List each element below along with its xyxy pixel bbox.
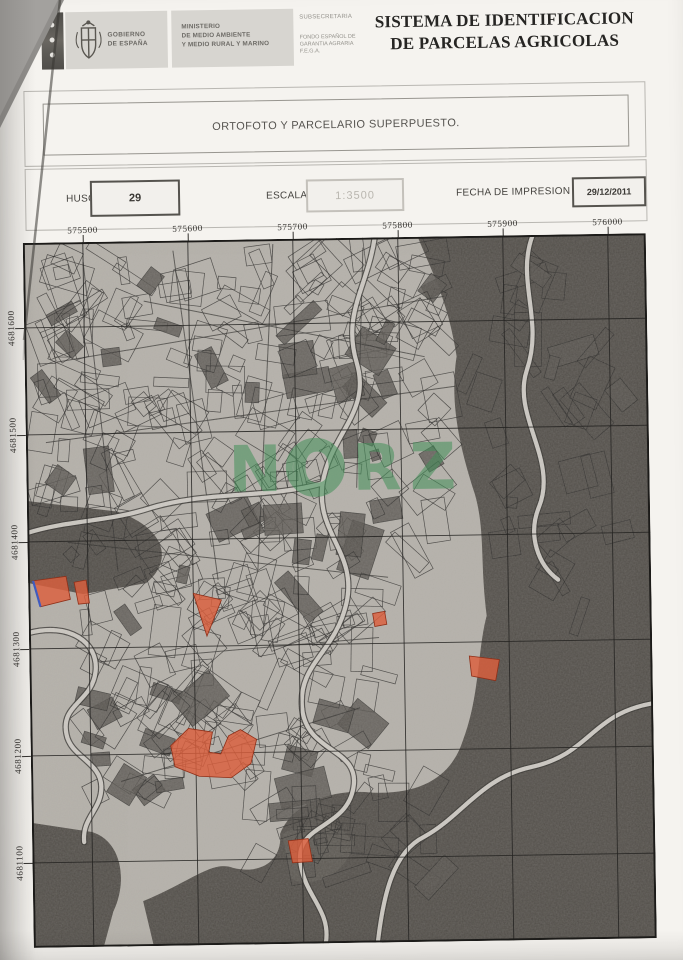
fega-label: FONDO ESPAÑOL DE GARANTIA AGRARIA F.E.G.… <box>300 34 370 57</box>
y-tick-mark <box>17 435 26 436</box>
x-tick-label: 575900 <box>487 218 518 229</box>
watermark-text: NORZ <box>228 430 465 508</box>
flag-dot-icon <box>50 37 55 42</box>
watermark: NORZ <box>228 430 465 508</box>
ministry-label: MINISTERIO DE MEDIO AMBIENTE Y MEDIO RUR… <box>181 21 287 50</box>
x-tick-label: 576000 <box>592 216 623 227</box>
subtitle-outer-box: ORTOFOTO Y PARCELARIO SUPERPUESTO. <box>23 81 646 167</box>
escala-label: ESCALA <box>266 190 307 202</box>
subsecretaria-label: SUBSECRETARIA <box>299 14 369 21</box>
subtitle-text: ORTOFOTO Y PARCELARIO SUPERPUESTO. <box>212 117 460 133</box>
y-tick-mark <box>15 328 24 329</box>
ministry-logo-box: MINISTERIO DE MEDIO AMBIENTE Y MEDIO RUR… <box>171 9 294 68</box>
huso-value: 29 <box>129 192 141 204</box>
x-tick-label: 575500 <box>67 225 98 236</box>
escala-value: 1:3500 <box>335 189 375 202</box>
paper-sheet: GOBIERNO DE ESPAÑA MINISTERIO DE MEDIO A… <box>0 0 683 960</box>
spain-flag-bar <box>41 12 64 69</box>
highlight-parcel-bottom-parcel <box>288 839 312 863</box>
fecha-value-box: 29/12/2011 <box>572 176 646 207</box>
government-label: GOBIERNO DE ESPAÑA <box>107 31 147 49</box>
fecha-value: 29/12/2011 <box>587 186 632 197</box>
subtitle-box: ORTOFOTO Y PARCELARIO SUPERPUESTO. <box>43 94 630 155</box>
photographed-document: GOBIERNO DE ESPAÑA MINISTERIO DE MEDIO A… <box>0 0 683 960</box>
y-tick-mark <box>18 542 27 543</box>
orthophoto-map: NORZ <box>23 233 657 948</box>
highlight-parcel-small-dot-parcel <box>373 611 387 626</box>
y-tick-mark <box>20 649 29 650</box>
document-title: SISTEMA DE IDENTIFICACION DE PARCELAS AG… <box>366 7 643 56</box>
x-tick-label: 575800 <box>382 220 413 231</box>
fecha-impresion-label: FECHA DE IMPRESION <box>456 186 570 199</box>
fields-box: HUSO 29 ESCALA 1:3500 FECHA DE IMPRESION… <box>25 159 648 231</box>
y-tick-mark <box>22 756 31 757</box>
y-tick-mark <box>24 863 33 864</box>
flag-dot-icon <box>50 52 55 57</box>
flag-dot-icon <box>49 22 54 27</box>
department-text: SUBSECRETARIA FONDO ESPAÑOL DE GARANTIA … <box>299 14 370 57</box>
x-tick-label: 575700 <box>277 221 308 232</box>
map-canvas: NORZ <box>23 233 657 948</box>
coat-of-arms-icon <box>75 19 102 61</box>
film-grain-light <box>23 233 657 948</box>
escala-value-box: 1:3500 <box>306 178 405 213</box>
government-logo-box: GOBIERNO DE ESPAÑA <box>65 11 168 70</box>
huso-value-box: 29 <box>90 180 181 217</box>
x-tick-label: 575600 <box>172 223 203 234</box>
